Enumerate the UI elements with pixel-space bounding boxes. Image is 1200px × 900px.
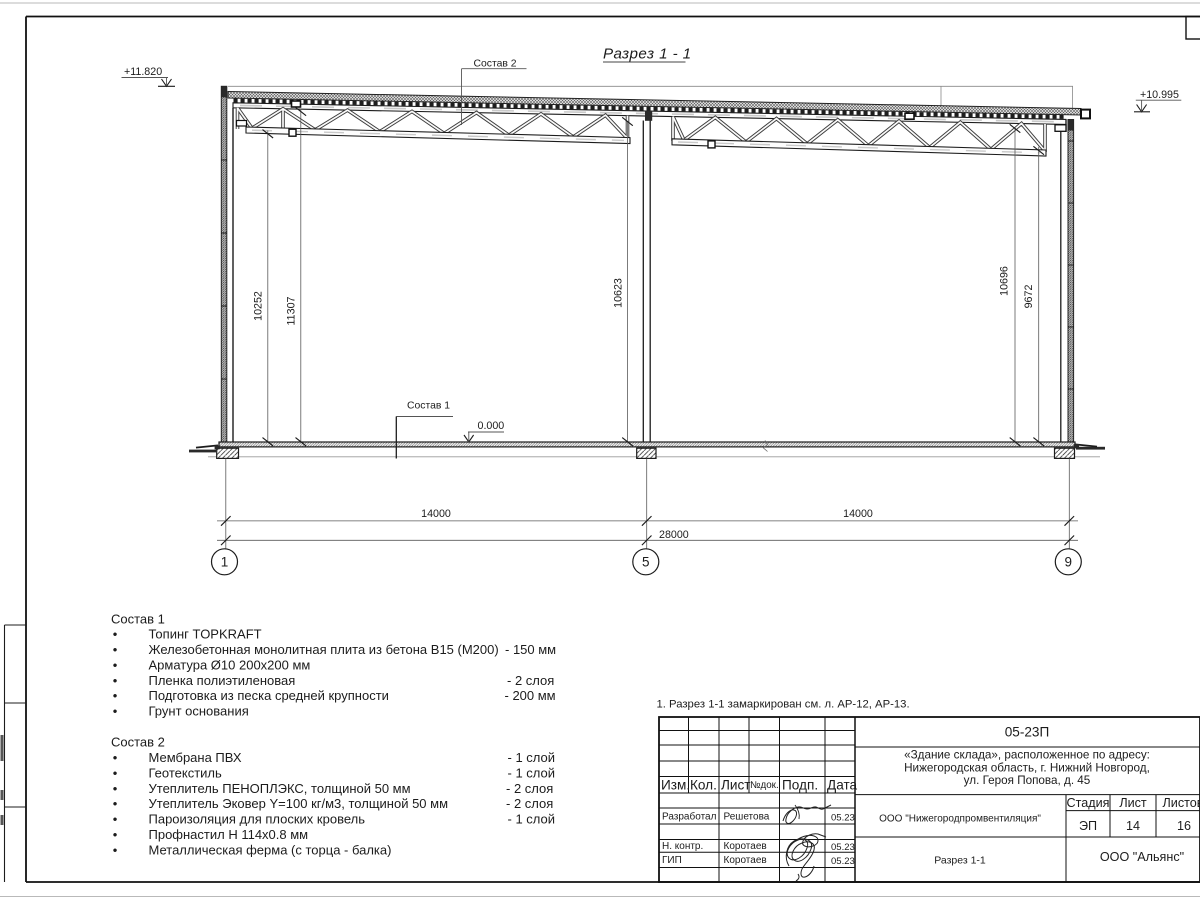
svg-text:Утеплитель ПЕНОПЛЭКС, толщиной: Утеплитель ПЕНОПЛЭКС, толщиной 50 мм [149, 781, 411, 796]
svg-text:•: • [113, 673, 118, 688]
svg-text:05.23: 05.23 [831, 842, 855, 853]
svg-text:- 2 слоя: - 2 слоя [507, 673, 554, 688]
svg-text:Решетова: Решетова [724, 812, 770, 823]
svg-text:Железобетонная монолитная плит: Железобетонная монолитная плита из бетон… [149, 642, 499, 657]
svg-text:05.23: 05.23 [831, 813, 855, 824]
svg-text:Коротаев: Коротаев [724, 841, 767, 852]
svg-text:Дата: Дата [827, 778, 858, 793]
svg-text:•: • [113, 842, 118, 857]
svg-text:Состав 1: Состав 1 [111, 612, 165, 627]
svg-text:05.23: 05.23 [831, 856, 855, 867]
svg-text:14000: 14000 [421, 508, 451, 520]
svg-text:Кол.: Кол. [690, 778, 717, 793]
svg-text:5: 5 [642, 555, 650, 570]
svg-text:ООО "Альянс": ООО "Альянс" [1100, 850, 1184, 864]
svg-text:1: 1 [221, 555, 229, 570]
svg-text:•: • [113, 627, 118, 642]
svg-text:0.000: 0.000 [478, 420, 505, 432]
svg-text:•: • [113, 657, 118, 672]
svg-text:- 2 слоя: - 2 слоя [506, 781, 553, 796]
svg-text:9: 9 [1065, 555, 1073, 570]
svg-text:16: 16 [1177, 819, 1191, 833]
svg-text:11307: 11307 [286, 296, 298, 325]
svg-text:1. Разрез 1-1 замаркирован см.: 1. Разрез 1-1 замаркирован см. л. АР-12,… [657, 699, 910, 711]
svg-text:ООО "Нижегородпромвентиляция": ООО "Нижегородпромвентиляция" [879, 814, 1041, 825]
svg-text:05-23П: 05-23П [1005, 725, 1050, 740]
svg-text:10696: 10696 [999, 266, 1011, 296]
svg-text:10623: 10623 [613, 278, 625, 308]
svg-text:Разработал: Разработал [662, 811, 717, 823]
svg-text:«Здание склада», расположенное: «Здание склада», расположенное по адресу… [904, 749, 1150, 762]
svg-text:Подготовка из песка средней кр: Подготовка из песка средней крупности [149, 688, 389, 703]
svg-text:Лист: Лист [721, 778, 751, 793]
svg-text:9672: 9672 [1023, 285, 1035, 309]
svg-text:•: • [113, 781, 118, 796]
svg-text:10252: 10252 [253, 291, 265, 321]
svg-text:•: • [113, 704, 118, 719]
svg-text:•: • [113, 642, 118, 657]
svg-text:Утеплитель Эковер Y=100 кг/м3,: Утеплитель Эковер Y=100 кг/м3, толщиной … [149, 796, 449, 811]
svg-text:28000: 28000 [659, 529, 689, 541]
svg-text:Коротаев: Коротаев [724, 855, 767, 866]
svg-text:- 150 мм: - 150 мм [505, 642, 556, 657]
svg-text:Стадия: Стадия [1067, 796, 1110, 810]
svg-text:Состав 2: Состав 2 [474, 59, 517, 70]
svg-text:Мембрана ПВХ: Мембрана ПВХ [149, 750, 242, 765]
svg-text:+11.820: +11.820 [124, 66, 162, 78]
svg-text:+10.995: +10.995 [1140, 89, 1179, 101]
svg-text:- 1 слой: - 1 слой [508, 765, 556, 780]
svg-text:Пароизоляция для плоских крове: Пароизоляция для плоских кровель [149, 812, 366, 827]
svg-text:14: 14 [1126, 819, 1140, 833]
svg-text:Топинг TOPKRAFT: Топинг TOPKRAFT [149, 627, 262, 642]
svg-text:•: • [113, 750, 118, 765]
svg-text:•: • [113, 688, 118, 703]
svg-text:Грунт основания: Грунт основания [149, 704, 249, 719]
svg-text:•: • [113, 796, 118, 811]
svg-text:•: • [113, 812, 118, 827]
svg-text:Подп.: Подп. [782, 778, 818, 793]
svg-text:- 1 слой: - 1 слой [508, 750, 556, 765]
svg-text:Арматура Ø10 200х200 мм: Арматура Ø10 200х200 мм [149, 657, 311, 672]
svg-text:Изм.: Изм. [661, 778, 690, 793]
svg-text:ул. Героя Попова, д. 45: ул. Героя Попова, д. 45 [964, 774, 1091, 787]
svg-text:Геотекстиль: Геотекстиль [149, 765, 223, 780]
svg-text:Металлическая ферма (с торца -: Металлическая ферма (с торца - балка) [149, 842, 392, 857]
svg-text:Листов: Листов [1163, 796, 1200, 810]
svg-text:•: • [113, 765, 118, 780]
svg-text:Н. контр.: Н. контр. [662, 841, 703, 852]
svg-text:Разрез 1-1: Разрез 1-1 [934, 855, 986, 867]
svg-text:Лист: Лист [1119, 796, 1147, 810]
svg-text:Пленка полиэтиленовая: Пленка полиэтиленовая [149, 673, 296, 688]
svg-text:•: • [113, 827, 118, 842]
svg-text:ЭП: ЭП [1079, 819, 1097, 833]
svg-text:- 2 слоя: - 2 слоя [506, 796, 553, 811]
svg-text:Разрез 1 - 1: Разрез 1 - 1 [603, 46, 692, 63]
svg-text:Профнастил Н 114х0.8 мм: Профнастил Н 114х0.8 мм [149, 827, 309, 842]
svg-text:Нижегородская область, г. Нижн: Нижегородская область, г. Нижний Новгоро… [904, 762, 1150, 775]
svg-text:№док.: №док. [750, 780, 779, 791]
svg-text:Состав 1: Состав 1 [407, 401, 450, 412]
svg-text:Состав 2: Состав 2 [111, 735, 165, 750]
svg-text:- 200 мм: - 200 мм [505, 688, 556, 703]
svg-text:- 1 слой: - 1 слой [508, 812, 556, 827]
svg-text:14000: 14000 [843, 508, 873, 520]
svg-text:ГИП: ГИП [662, 855, 682, 866]
